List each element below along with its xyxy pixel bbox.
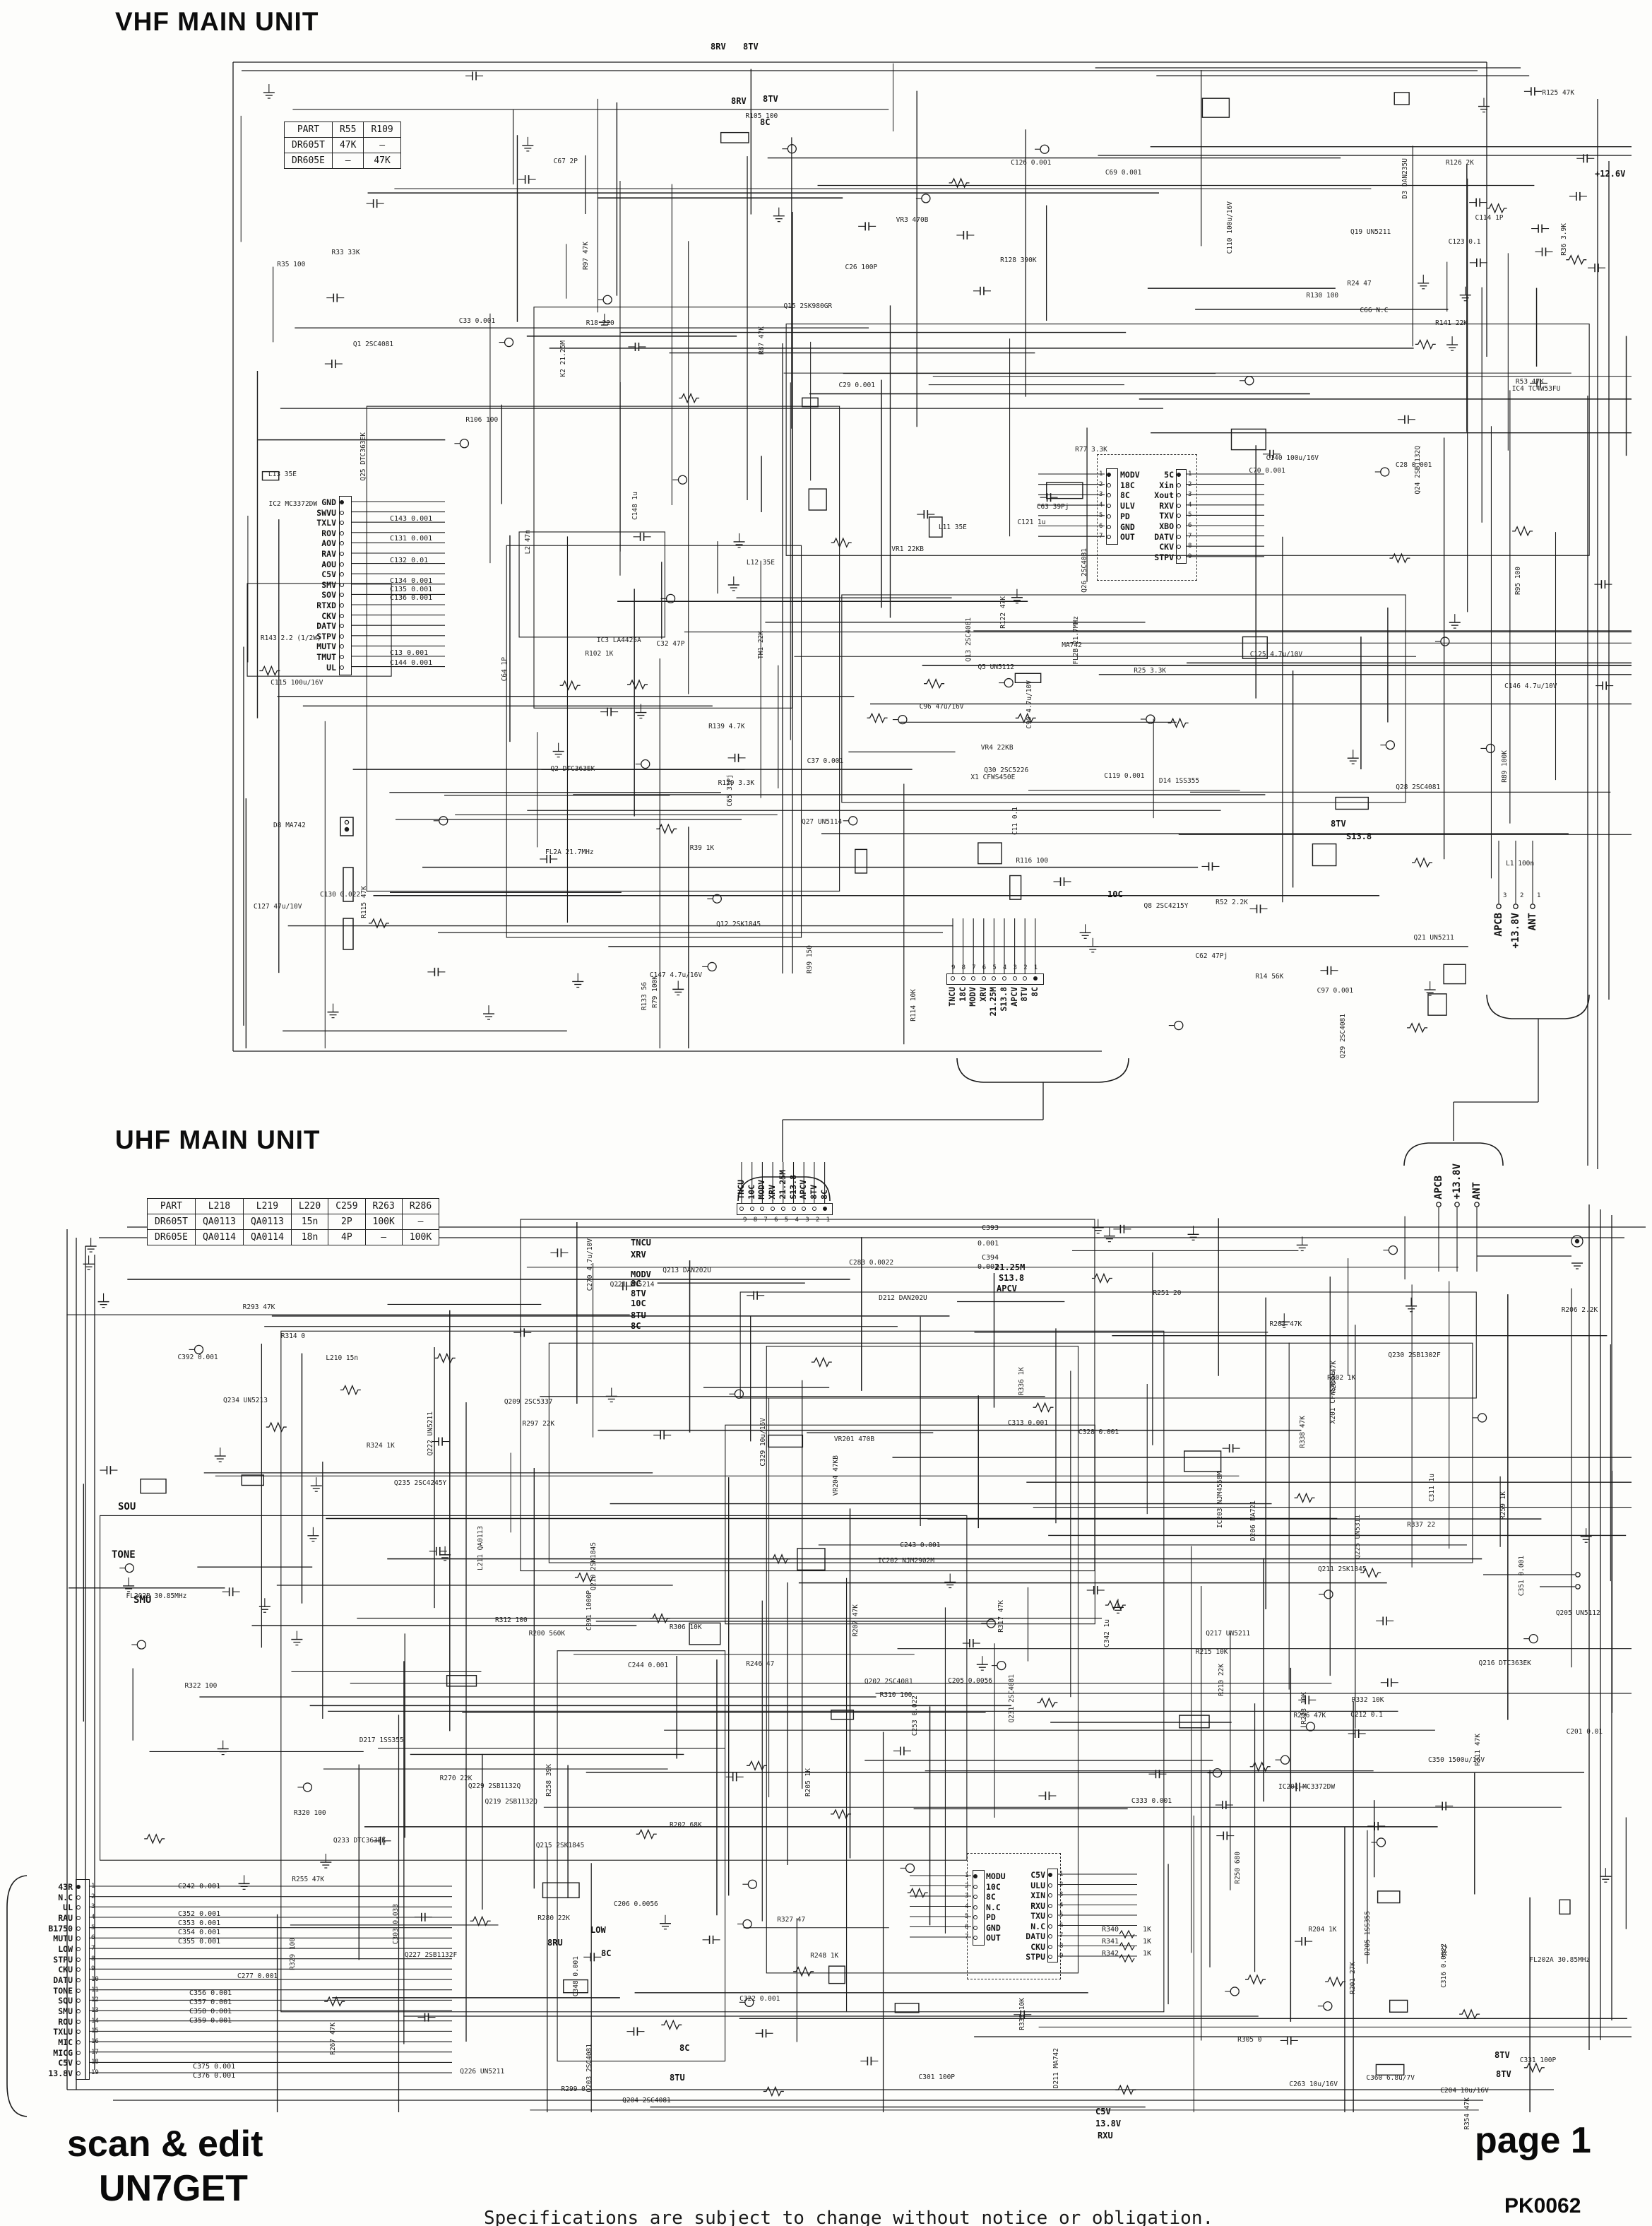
component-ref-label: R337 22 [1407,1522,1435,1529]
cn502-pin-label: STPV [1089,553,1174,562]
cn202-pin [750,1207,754,1211]
component-ref-label: C110 100u/16V [1227,201,1234,254]
component-ref-label: R52 2.2K [1216,899,1248,906]
cn1-pin [340,552,344,556]
vhf-out-pin-label: ANT [1528,913,1538,930]
cn201-pin-label: RAU [0,1914,73,1923]
cn201-pin-label: MUTU [0,1934,73,1943]
vhf-out-pin-number: 1 [1537,893,1540,899]
vhf-out-pin-label: +13.8V [1511,913,1521,949]
table-cell: 100K [365,1214,402,1230]
cn1-pin-label: TXLV [251,519,336,528]
uhf-bottom-rail-label: 8TV [1494,2051,1510,2059]
cn1-pin [340,603,344,608]
cn201-pin-label: TONE [0,1987,73,1996]
table-header-cell: R109 [364,122,400,138]
component-ref-label: R129 3.3K [718,780,754,787]
component-ref-label: R39 1K [690,845,714,852]
component-ref-label: C119 0.001 [1104,773,1144,780]
component-ref-label: R327 47 [777,1917,805,1924]
vhf-out-pin-label: APCB [1494,913,1504,937]
component-ref-label: R139 4.7K [708,723,744,730]
component-ref-label: C66 N.C [1360,307,1388,314]
component-ref-label: R114 10K [910,989,917,1022]
table-cell: DR605E [285,153,333,169]
component-ref-label: R258 39K [546,1764,553,1796]
component-ref-label: C201 0.01 [1567,1729,1603,1736]
cn201-pin [76,2040,81,2044]
table-header-cell: L220 [291,1199,328,1214]
cn201-pin-number: 4 [91,1914,95,1921]
cn201-pin [76,1978,81,1982]
cn202-pin [760,1207,764,1211]
component-ref-label: C342 1u [1104,1619,1111,1647]
table-header-cell: L219 [243,1199,291,1214]
cn502-pin-label: CKV [1089,543,1174,552]
component-ref-label: IC202 NJM2902M [878,1558,934,1565]
cn202-pin-number: 2 [816,1217,819,1224]
cn201-pin-label: 13.8V [0,2069,73,2078]
vhf-rail-label: 10C [1107,890,1123,899]
cn602-pin-label: DATU [961,1932,1045,1941]
cn201-pin-number: 17 [91,2049,99,2056]
component-ref-label: Q2 DTC363EK [550,766,595,773]
component-ref-label: Q202 2SC4081 [864,1679,913,1686]
component-ref-label: R280 22K [537,1915,570,1922]
component-ref-label: Q15 2SK980GR [784,303,833,310]
cn502-pin-label: 5C [1089,470,1174,480]
component-ref-label: L11 35E [939,524,967,531]
component-ref-label: C212 0.1 [1350,1712,1383,1719]
cn602-pin [1048,1934,1052,1938]
component-ref-label: TP2 [1442,1945,1449,1957]
cn502-pin [1177,524,1181,528]
component-ref-label: VR4 22KB [981,745,1014,752]
cn602-pin-number: 6 [1059,1923,1063,1929]
component-ref-label: C125 4.7u/10V [1250,651,1302,658]
component-ref-label: Q226 UN5211 [460,2068,504,2076]
cn3-pin-label: S13.8 [999,987,1009,1012]
cn202-pin-number: 1 [826,1217,830,1224]
cn202-pin-label: 8C [820,1190,829,1200]
credit-line-2: UN7GET [99,2167,248,2210]
component-ref-label: FL2A 21.7MHz [545,849,594,856]
uhf-mid-rail-label: S13.8 [999,1274,1024,1282]
table-cell: QA0114 [243,1230,291,1245]
cn502-pin [1177,535,1181,539]
cn1-pin [340,655,344,659]
cn201-pin-number: 14 [91,2018,99,2025]
component-ref-label: C331 100P [1520,2057,1556,2064]
cn602-pin [1048,1955,1052,1959]
vhf-rail-label: 8RV [711,42,726,51]
component-ref-label: VR1 22KB [891,546,924,553]
component-ref-label: L1 100n [1506,860,1534,868]
cn602-pin-number: 2 [1059,1882,1063,1888]
cn202-pin-label: TNCU [737,1180,746,1200]
cn202-pin-number: 3 [805,1217,809,1224]
uhf-left-rail-label: 8C [631,1322,641,1330]
uhf-bottom-rail-label: 13.8V [1095,2119,1121,2128]
cn1-pin [340,562,344,567]
cn202-pin-label: MODV [757,1180,766,1200]
component-ref-label: C391 1000P [586,1590,593,1630]
cn201-pin-number: 9 [91,1966,95,1972]
vhf-rail-label: 8TV [1331,819,1346,828]
component-ref-label: Q225 UN5311 [1355,1515,1362,1559]
cn502-pin-number: 8 [1188,543,1192,550]
component-ref-label: C70 0.001 [1249,468,1285,475]
cn201-cap-label: C354 0.001 [178,1929,220,1936]
uhf-vco-resistor-value: 1K [1143,1950,1151,1958]
cn201-pin-label: B1750 [0,1924,73,1934]
uhf-out-pin-label: +13.8V [1452,1164,1463,1200]
component-ref-label: R143 2.2 (1/2W) [261,635,321,642]
component-ref-label: C333 0.001 [1131,1798,1172,1805]
component-ref-label: IC2 MC3372DW [268,501,317,508]
component-ref-label: FL2B 21.7MHz [1073,616,1080,665]
component-ref-label: Q216 DTC363EK [1479,1660,1531,1667]
component-ref-label: D14 1SS355 [1159,778,1199,785]
component-ref-label: Q235 2SC4245Y [394,1480,446,1487]
uhf-vco-resistor-value: 1K [1143,1938,1151,1946]
component-ref-label: R270 22K [440,1775,473,1782]
component-ref-label: D205 1SS355 [1365,1911,1372,1955]
component-ref-label: VR201 470B [834,1436,874,1443]
cn602-pin [1048,1914,1052,1918]
cn602-pin-number: 8 [1059,1943,1063,1950]
table-cell: 15n [291,1214,328,1230]
cn502-pin-number: 6 [1188,523,1192,529]
component-ref-label: C329 10u/16V [760,1418,767,1467]
cn602-pin-label: CKU [961,1943,1045,1952]
component-ref-label: C351 0.001 [1519,1556,1526,1596]
component-ref-label: C311 1u [1429,1474,1436,1502]
component-ref-label: R302 1K [1327,1375,1355,1382]
cn1-pin-label: MUTV [251,642,336,651]
uhf-bottom-rail-label: 8C [679,2044,689,2052]
vhf-rail-label: S13.8 [1346,832,1372,841]
cn201-cap-label: C359 0.001 [189,2018,232,2025]
component-ref-label: R205 1K [805,1768,812,1796]
cn502-pin-number: 4 [1188,502,1192,509]
uhf-vco-resistor-label: R342 [1102,1950,1119,1958]
component-ref-label: IC201 MC3372DW [1278,1784,1335,1791]
cn1-pin [340,531,344,535]
component-ref-label: R312 100 [495,1617,528,1624]
uhf-vco-resistor-label: R341 [1102,1938,1119,1946]
cn602-pin [1048,1924,1052,1929]
component-ref-label: C11 0.1 [1012,807,1019,835]
component-ref-label: R141 22K [1435,320,1468,327]
component-ref-label: L210 15n [326,1355,358,1362]
component-ref-label: C283 0.0022 [849,1260,893,1267]
cn3-pin-label: 8TV [1020,987,1029,1002]
cn201-pin [76,1895,81,1900]
cn201-pin-label: ROU [0,2018,73,2027]
component-ref-label: D211 MA742 [1053,2048,1060,2088]
component-ref-label: R102 1K [585,651,613,658]
cn201-pin [76,2020,81,2024]
component-ref-label: R36 3.9K [1561,223,1568,256]
cn602-pin-number: 9 [1059,1953,1063,1960]
table-cell: 47K [332,138,363,153]
cn201-pin-number: 16 [91,2039,99,2045]
cn202-pin-number: 8 [754,1217,757,1224]
component-ref-label: R89 100K [1502,750,1509,783]
component-ref-label: R125 47K [1542,90,1574,97]
component-ref-label: L13 35E [268,471,297,478]
component-ref-label: R95 100 [1515,567,1522,595]
cn201-pin [76,1947,81,1951]
uhf-bottom-rail-label: RXU [1098,2131,1113,2140]
vhf-rail-label: 8TV [743,42,759,51]
component-ref-label: R297 22K [522,1421,554,1428]
cn201-cap-label: C352 0.001 [178,1911,220,1918]
component-ref-label: R248 1K [810,1953,838,1960]
cn201-pin-number: 3 [91,1904,95,1910]
table-header-cell: PART [148,1199,196,1214]
table-header-cell: L218 [195,1199,243,1214]
cn602-pin [1048,1945,1052,1949]
cn502-pin-number: 3 [1188,492,1192,498]
component-ref-label: R133 56 [641,982,648,1010]
component-ref-label: R35 100 [277,261,305,268]
component-ref-label: C130 0.022 [320,892,360,899]
component-ref-label: L2 47n [525,530,532,554]
cn1-pin-label: RAV [251,550,336,559]
cn201-cap-label: C357 0.001 [189,1999,232,2006]
table-header-cell: R263 [365,1199,402,1214]
cn602-pin [1048,1883,1052,1888]
component-ref-label: R322 100 [185,1683,218,1690]
component-ref-label: Q221 UN5214 [610,1281,655,1289]
cn201-cap-label: C242 0.001 [178,1883,220,1890]
cn1-pin-label: RTXD [251,601,336,610]
cn1-pin-label: C5V [251,570,336,579]
cn3-pin-number: 9 [951,965,955,971]
component-ref-label: C277 0.001 [237,1973,278,1980]
component-ref-label: Q231 2SC4081 [1009,1674,1016,1723]
cn1-pin-label: SWVU [251,509,336,518]
component-ref-label: Q13 2SC4081 [965,617,973,662]
component-ref-label: D206 MA721 [1250,1500,1257,1541]
uhf-out-pin-label: APCB [1434,1176,1444,1200]
uhf-bottom-rail-label: 8C [601,1949,611,1958]
uhf-out-pin-label: ANT [1472,1182,1482,1200]
component-ref-label: Q222 UN5211 [427,1411,434,1456]
cn602-pin-number: 7 [1059,1933,1063,1939]
cn202-pin-label: 21.25M [778,1170,788,1200]
component-ref-label: R115 47K [361,886,368,918]
component-ref-label: R296 47K [1294,1712,1326,1719]
cn602-pin-label: STPU [961,1953,1045,1962]
cn202-pin [739,1207,744,1211]
component-ref-label: R259 1K [1500,1491,1507,1520]
cn202-pin-number: 9 [743,1217,747,1224]
component-ref-label: R18 220 [586,320,614,327]
schematic-page: VHF MAIN UNIT UHF MAIN UNIT PARTR55R109D… [0,0,1652,2226]
component-ref-label: Q234 UN5213 [223,1397,268,1404]
component-ref-label: R87 47K [759,326,766,355]
cn602-pin-label: N.C [961,1922,1045,1931]
cn201-pin-label: SMU [0,2007,73,2016]
cn502-pin [1177,555,1181,560]
component-ref-label: Q233 DTC363EK [333,1837,386,1845]
cn1-pin-label: AOV [251,539,336,548]
cn3-pin [1033,976,1038,981]
component-ref-label: R201 27K [1350,1962,1357,1994]
cn1-pin [340,665,344,670]
component-ref-label: Q21 UN5211 [1414,935,1454,942]
component-ref-label: R324 1K [367,1443,395,1450]
cn201-pin-number: 15 [91,2028,99,2035]
component-ref-label: C148 1u [632,492,639,520]
cn202-pin [771,1207,775,1211]
table-cell: 18n [291,1230,328,1245]
component-ref-label: Q229 2SB1132Q [468,1783,521,1790]
component-ref-label: C127 47u/10V [254,904,302,911]
cn1-pin-label: CKV [251,612,336,621]
cn201-pin-label: 43R [0,1883,73,1892]
component-ref-label: Q213 DAN202U [662,1267,711,1274]
component-ref-label: R267 47K [330,2023,337,2055]
component-ref-label: R79 100K [652,976,659,1008]
table-cell: DR605T [148,1214,196,1230]
component-ref-label: R99 150 [807,945,814,973]
table-cell: 100K [402,1230,439,1245]
component-ref-label: R314 0 [281,1333,305,1340]
cn1-bypass-cap-label: C135 0.001 [390,586,432,593]
cn202-pin-label: 8TV [809,1185,819,1200]
cn202-cap-label: C394 [982,1255,999,1262]
component-ref-label: Q219 2SB1132Q [485,1799,537,1806]
table-cell: QA0113 [195,1214,243,1230]
component-ref-label: FL202A 30.85MHz [1529,1957,1590,1964]
cn201-pin-number: 8 [91,1956,95,1962]
component-ref-label: C206 0.0056 [614,1901,658,1908]
cn201-pin [76,1885,81,1889]
table-cell: 2P [328,1214,365,1230]
cn3-pin-number: 2 [1023,965,1027,971]
component-ref-label: C126 0.001 [1011,160,1051,167]
component-ref-label: Q215 2SK1845 [536,1842,585,1849]
component-ref-label: R206 2.2K [1562,1307,1598,1314]
vhf-rail-label: +12.6V [1595,170,1625,178]
component-ref-label: R338 47K [1300,1416,1307,1448]
uhf-left-rail-label: 10C [631,1299,646,1308]
uhf-bottom-rail-label: 8RU [547,1938,563,1947]
table-header-cell: R55 [332,122,363,138]
component-ref-label: Q30 2SC5226 [984,767,1028,774]
vhf-rail-label: 8RV [731,97,747,105]
component-ref-label: C114 1P [1475,215,1503,222]
component-ref-label: Q28 2SC4081 [1396,784,1440,791]
cn1-bypass-cap-label: C143 0.001 [390,516,432,523]
component-ref-label: Q19 UN5211 [1350,229,1391,236]
cn602-pin-label: RXU [961,1902,1045,1911]
vhf-rail-label: 8TV [763,95,778,103]
cn1-pin-label: TMUT [251,653,336,662]
component-ref-label: K2 21.25M [560,341,567,377]
component-ref-label: Q26 2SC4081 [1081,548,1088,593]
component-ref-label: IC3 LA4425A [597,637,641,644]
component-ref-label: C37 0.001 [807,758,843,765]
component-ref-label: C33 0.001 [459,318,495,325]
cn502-pin-label: DATV [1089,533,1174,542]
cn201-pin [76,2071,81,2076]
component-ref-label: R310 100 [880,1692,913,1699]
component-ref-label: R116 100 [1016,858,1048,865]
table-cell: DR605E [148,1230,196,1245]
component-ref-label: C62 47Pj [1195,953,1228,960]
component-ref-label: C243 0.001 [900,1542,940,1549]
cn201-pin [76,1958,81,1962]
table-cell: QA0113 [243,1214,291,1230]
component-ref-label: R250 680 [1235,1852,1242,1884]
uhf-audio-rail-label: SOU [118,1502,136,1512]
cn3-pin [982,976,986,981]
cn3-pin [1013,976,1017,981]
component-ref-label: D212 DAN202U [879,1295,927,1302]
component-ref-label: R251 20 [1153,1290,1181,1297]
cn3-pin [1002,976,1006,981]
table-cell: – [332,153,363,169]
cn3-pin [961,976,965,981]
component-ref-label: TH1 22K [758,631,765,659]
cn202-pin [792,1207,796,1211]
cn202-pin-label: 10C [747,1185,756,1200]
component-ref-label: VR3 470B [896,217,929,224]
cn1-bypass-cap-label: C13 0.001 [390,650,428,657]
cn201-pin-label: N.C [0,1893,73,1902]
cn1-pin [340,634,344,639]
uhf-parts-table: PARTL218L219L220C259R263R286DR605TQA0113… [147,1198,439,1245]
component-ref-label: C97 0.001 [1317,988,1353,995]
component-ref-label: R122 47K [1000,596,1007,629]
component-ref-label: D217 1SS355 [359,1737,404,1744]
component-ref-label: R293 47K [243,1304,275,1311]
component-ref-label: R333 10K [1019,1998,1026,2030]
cn3-pin-number: 3 [1014,965,1017,971]
cn602-pin-label: C5V [961,1871,1045,1880]
cn1-pin [340,614,344,618]
cn502-pin-number: 5 [1188,512,1192,519]
component-ref-label: Q211 2SK1845 [1318,1566,1367,1573]
component-ref-label: L12 35E [747,560,775,567]
component-ref-label: R200 560K [529,1630,565,1638]
credit-line-1: scan & edit [67,2123,263,2165]
component-ref-label: IC4 TC4W53FU [1512,386,1561,393]
cn1-bypass-cap-label: C144 0.001 [390,660,432,667]
cn201-pin-number: 7 [91,1946,95,1952]
component-ref-label: D3 DAN235U [1402,158,1409,199]
component-ref-label: C64 1P [501,657,509,681]
cn201-pin-label: STPU [0,1955,73,1965]
component-ref-label: R317 47K [998,1600,1005,1633]
table-cell: – [364,138,400,153]
cn202-pin-label: APCV [799,1180,808,1200]
component-ref-label: Q203 2SC4081 [586,2044,593,2092]
component-ref-label: C301 100P [919,2074,955,2081]
cn202-pin-number: 4 [795,1217,799,1224]
cn602-pin-number: 3 [1059,1892,1063,1898]
component-ref-label: C90 4.7u/10V [1026,680,1033,729]
page-number: page 1 [1475,2119,1591,2162]
component-ref-label: R202 68K [670,1822,702,1829]
component-ref-label: R203 47K [1270,1321,1302,1328]
cn502-pin [1177,483,1181,487]
